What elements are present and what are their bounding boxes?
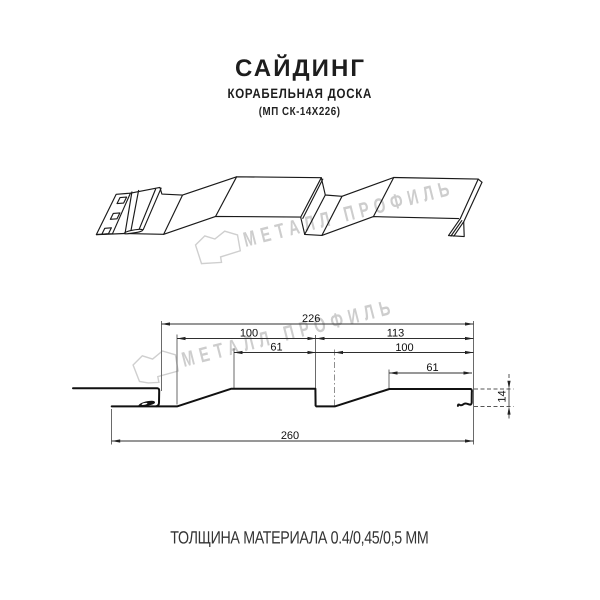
svg-text:КОРАБЕЛЬНАЯ ДОСКА: КОРАБЕЛЬНАЯ ДОСКА — [228, 86, 372, 101]
svg-text:(МП СК-14Х226): (МП СК-14Х226) — [259, 105, 340, 118]
svg-text:100: 100 — [395, 342, 413, 354]
svg-text:260: 260 — [281, 430, 299, 442]
svg-text:113: 113 — [387, 328, 405, 340]
svg-text:ТОЛЩИНА МАТЕРИАЛА 0.4/0,45/0,5: ТОЛЩИНА МАТЕРИАЛА 0.4/0,45/0,5 ММ — [170, 528, 428, 548]
svg-text:100: 100 — [240, 328, 258, 340]
svg-text:61: 61 — [426, 362, 438, 374]
svg-text:14: 14 — [497, 390, 509, 402]
svg-text:226: 226 — [302, 313, 320, 325]
svg-text:61: 61 — [270, 342, 282, 354]
svg-text:САЙДИНГ: САЙДИНГ — [235, 54, 364, 82]
